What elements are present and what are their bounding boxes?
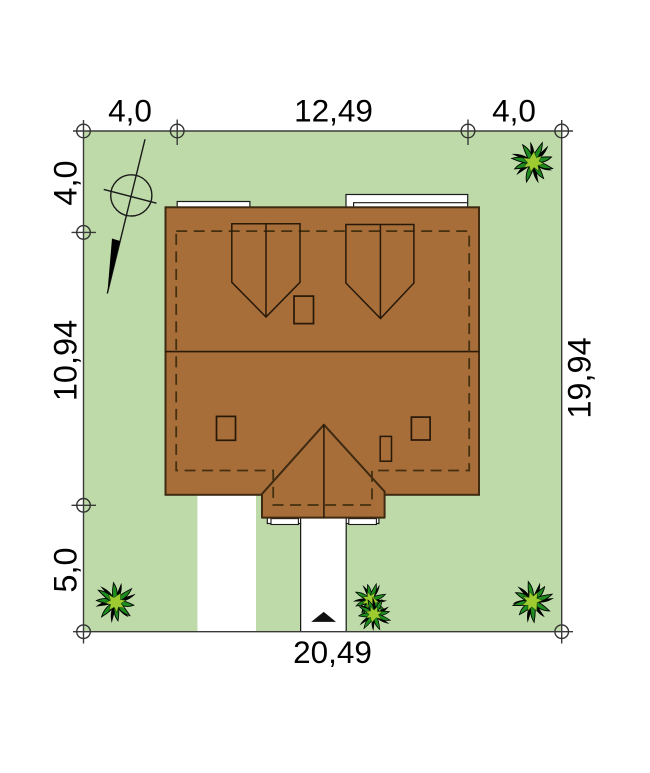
svg-text:5,0: 5,0 bbox=[48, 547, 84, 592]
svg-text:10,94: 10,94 bbox=[48, 320, 84, 401]
svg-text:12,49: 12,49 bbox=[294, 93, 373, 129]
svg-text:4,0: 4,0 bbox=[492, 93, 536, 129]
svg-text:19,94: 19,94 bbox=[562, 337, 598, 418]
svg-text:20,49: 20,49 bbox=[293, 634, 372, 670]
svg-text:4,0: 4,0 bbox=[48, 160, 84, 205]
svg-text:4,0: 4,0 bbox=[108, 93, 152, 129]
